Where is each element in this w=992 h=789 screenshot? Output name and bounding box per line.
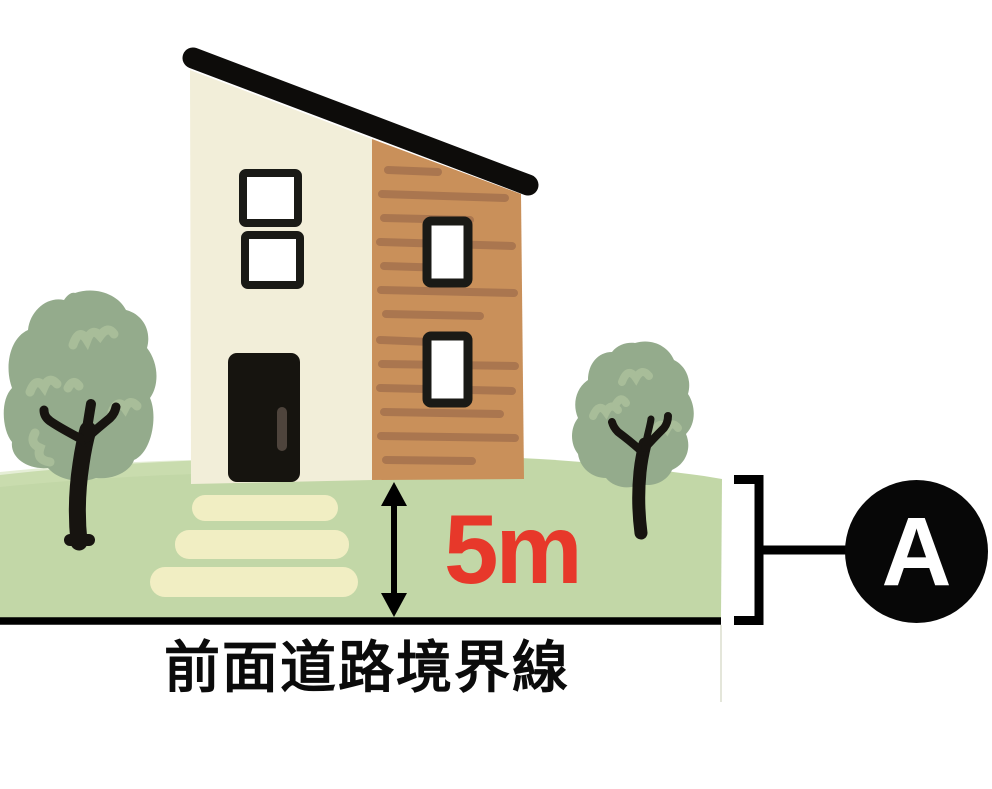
step-bottom <box>150 567 358 597</box>
bracket-shape <box>734 480 759 621</box>
window-left-upper <box>243 173 298 223</box>
dimension-bracket <box>734 480 848 621</box>
label-a-badge: A <box>845 480 988 623</box>
label-a-text: A <box>881 503 951 600</box>
setback-diagram: 5m 前面道路境界線 A <box>0 0 992 789</box>
window-left-lower <box>245 235 300 285</box>
step-top <box>192 495 338 521</box>
door-icon <box>228 353 300 482</box>
house-wall-wood <box>372 139 524 480</box>
step-middle <box>175 530 349 559</box>
window-right-lower <box>427 336 468 403</box>
measurement-label: 5m <box>444 500 580 598</box>
road-boundary-label: 前面道路境界線 <box>164 639 570 698</box>
door-handle <box>277 407 287 451</box>
window-right-upper <box>427 221 468 283</box>
house-icon <box>190 58 528 484</box>
